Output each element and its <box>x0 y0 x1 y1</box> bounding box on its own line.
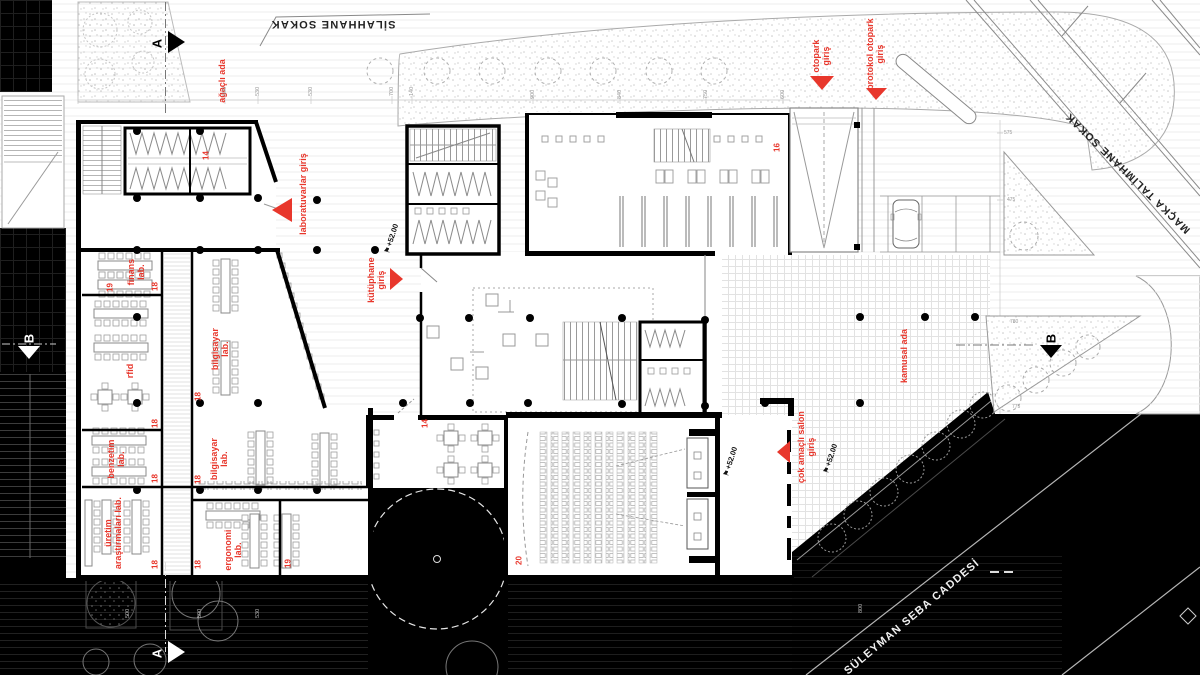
entrance-label-protokol: protokol otopark giriş <box>865 14 885 94</box>
dimension-text: 700 <box>389 82 395 96</box>
dimension-text: 800 <box>858 599 864 613</box>
dimension-text: 500 <box>125 604 131 618</box>
room-number: 18 <box>151 279 160 295</box>
room-number: 18 <box>151 557 160 573</box>
room-number: 20 <box>515 553 524 569</box>
floor-plan-drawing <box>0 0 1200 675</box>
room-number: 19 <box>284 556 293 572</box>
dimension-text: 530 <box>308 82 314 96</box>
area-label-kamusal-ada: kamusal ada <box>899 325 909 387</box>
dimension-text: 600 <box>780 85 786 99</box>
entrance-label-kutuphane: kütüphane giriş <box>366 254 386 306</box>
entrance-label-otopark: otopark giriş <box>811 35 831 77</box>
dimension-text: 500 <box>197 604 203 618</box>
dimension-text: 750 <box>703 85 709 99</box>
dimension-text: 500 <box>222 82 228 96</box>
room-number: 19 <box>106 280 115 296</box>
dimension-text: 575 <box>1004 130 1012 136</box>
section-letter-a: A <box>150 647 165 661</box>
dimension-text: 900 <box>530 85 536 99</box>
entrance-label-laboratuvarlar: laboratuvarlar giriş <box>298 153 308 235</box>
room-label-bilgisayar-ust: bilgisayar lab. <box>210 325 230 373</box>
room-number: 18 <box>194 389 203 405</box>
dimension-text: 140 <box>409 82 415 96</box>
dimension-text: 775 <box>1012 404 1020 410</box>
room-number: 18 <box>151 471 160 487</box>
dimension-text: 475 <box>1007 197 1015 203</box>
dimension-text: 840 <box>617 85 623 99</box>
room-number: 16 <box>773 140 782 156</box>
dimension-text: 530 <box>255 604 261 618</box>
outdoor-stair-west <box>2 96 64 228</box>
room-label-bilgisayar-alt: bilgisayar lab. <box>209 435 229 483</box>
section-letter-b: B <box>1044 332 1059 346</box>
room-label-ergonomi: ergonomi lab. <box>223 527 243 573</box>
site-floor-plan: SİLAHHANE SOKAK MAÇKA TALİMHANE SOKAK SÜ… <box>0 0 1200 675</box>
car-icon <box>891 200 921 248</box>
section-letter-b: B <box>22 332 37 346</box>
room-number: 18 <box>194 472 203 488</box>
room-label-rfid: rfid <box>125 359 135 383</box>
dimension-text: 530 <box>255 82 261 96</box>
section-letter-a: A <box>150 37 165 51</box>
dimension-text: 780 <box>1010 319 1018 325</box>
room-label-benzetim: benzetim lab. <box>106 436 126 482</box>
room-number: 18 <box>151 416 160 432</box>
entrance-label-cok-amacli: çok amaçlı salon giriş <box>796 409 816 485</box>
room-number: 14 <box>421 416 430 432</box>
room-label-uretim: üretim araştırmaları lab. <box>103 492 123 574</box>
room-label-finans: finans lab. <box>126 255 146 289</box>
auditorium-seats <box>540 432 657 563</box>
room-number: 14 <box>202 148 211 164</box>
street-label-silahhane: SİLAHHANE SOKAK <box>268 18 398 30</box>
room-number: 18 <box>194 557 203 573</box>
